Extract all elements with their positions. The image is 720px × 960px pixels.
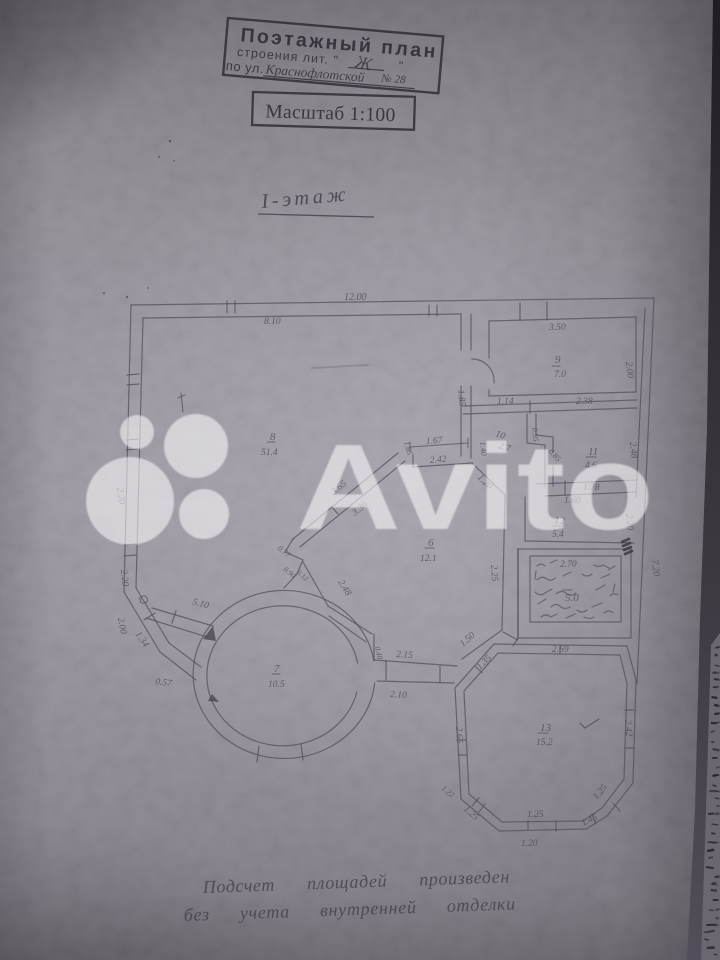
- svg-text:2.42: 2.42: [622, 720, 633, 738]
- svg-text:1.14: 1.14: [497, 397, 514, 407]
- svg-text:2.25: 2.25: [488, 565, 499, 583]
- svg-text:2.10: 2.10: [390, 690, 407, 701]
- svg-text:8.10: 8.10: [264, 317, 281, 327]
- svg-text:2.70: 2.70: [560, 560, 577, 570]
- svg-text:2.38: 2.38: [576, 397, 593, 407]
- svg-text:2.20: 2.20: [118, 569, 130, 587]
- svg-text:51.4: 51.4: [261, 448, 278, 458]
- svg-text:1.85: 1.85: [455, 389, 467, 407]
- svg-text:9: 9: [555, 354, 561, 366]
- svg-text:2.00: 2.00: [623, 361, 635, 379]
- svg-text:3.50: 3.50: [548, 323, 566, 333]
- svg-text:13: 13: [540, 722, 552, 734]
- svg-text:15.2: 15.2: [536, 738, 553, 748]
- svg-text:12.1: 12.1: [420, 554, 437, 564]
- svg-text:№ 28: № 28: [380, 72, 407, 86]
- svg-text:1.20: 1.20: [521, 839, 538, 849]
- svg-text:2.15: 2.15: [396, 650, 413, 661]
- svg-text:2.69: 2.69: [552, 645, 569, 655]
- svg-text:5.0: 5.0: [565, 592, 579, 604]
- svg-text:7.20: 7.20: [649, 559, 661, 577]
- svg-text:7: 7: [274, 663, 280, 675]
- svg-text:7.0: 7.0: [554, 370, 566, 380]
- svg-text:1.25: 1.25: [527, 810, 544, 820]
- svg-text:10.5: 10.5: [268, 680, 285, 690]
- svg-text:12.00: 12.00: [344, 292, 367, 303]
- svg-text:2.65: 2.65: [453, 727, 464, 744]
- svg-text:8: 8: [270, 431, 276, 443]
- svg-text:Avito: Avito: [296, 419, 654, 555]
- svg-text:Масштаб 1:100: Масштаб 1:100: [265, 101, 396, 126]
